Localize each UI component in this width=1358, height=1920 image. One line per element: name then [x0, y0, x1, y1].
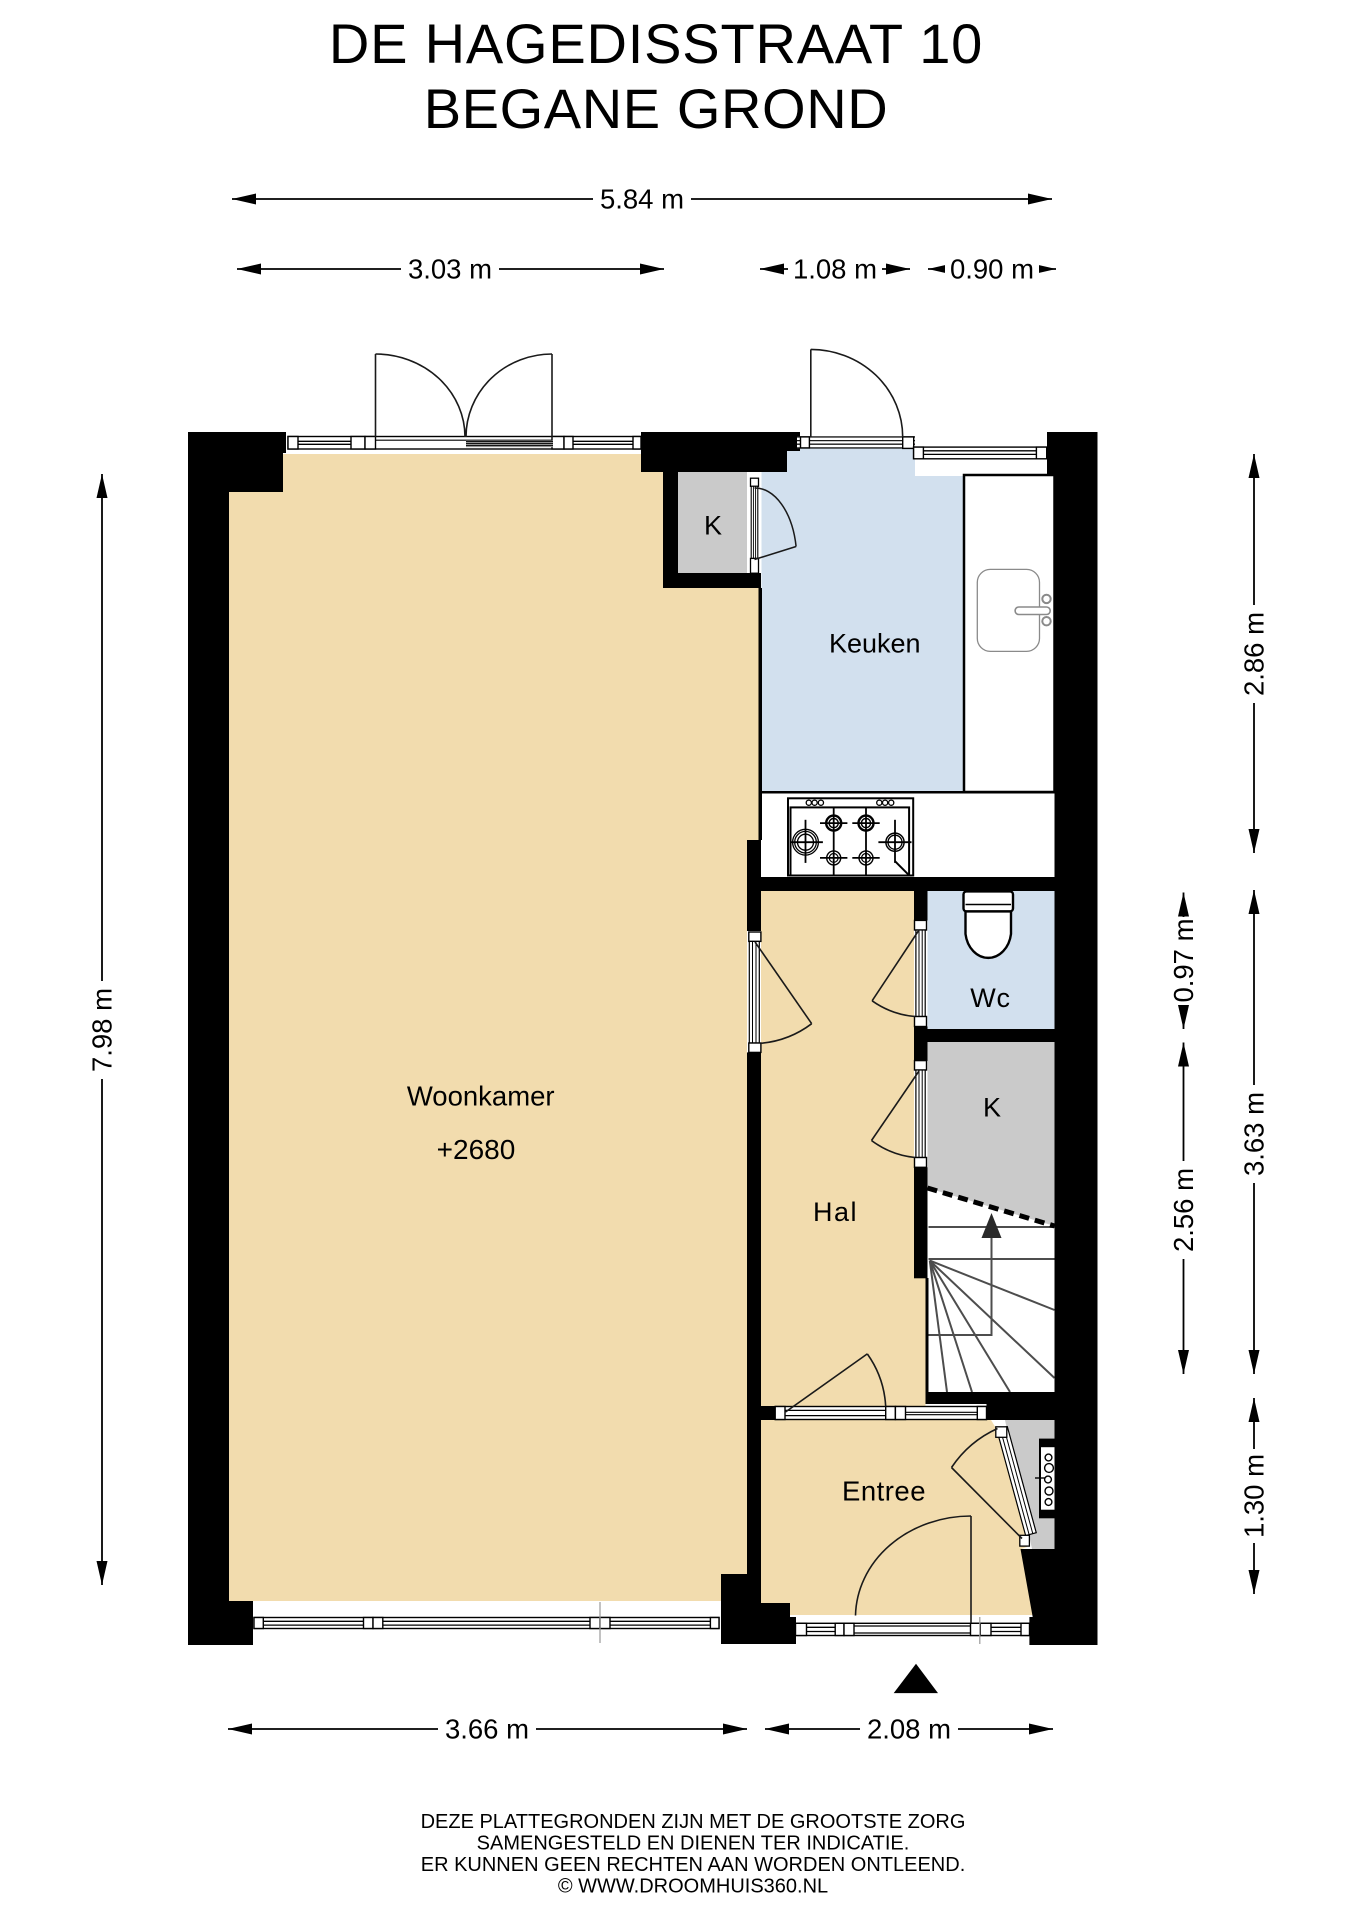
svg-text:0.97 m: 0.97 m [1168, 918, 1199, 1002]
svg-text:Hal: Hal [813, 1197, 858, 1227]
svg-text:Woonkamer: Woonkamer [407, 1081, 555, 1112]
svg-text:5.84 m: 5.84 m [600, 184, 684, 215]
svg-text:DEZE PLATTEGRONDEN ZIJN MET DE: DEZE PLATTEGRONDEN ZIJN MET DE GROOTSTE … [421, 1811, 966, 1833]
svg-text:K: K [704, 511, 722, 541]
svg-text:ER KUNNEN GEEN RECHTEN AAN WOR: ER KUNNEN GEEN RECHTEN AAN WORDEN ONTLEE… [421, 1854, 966, 1876]
svg-text:0.90 m: 0.90 m [950, 254, 1034, 285]
svg-text:1.08 m: 1.08 m [793, 254, 877, 285]
svg-text:Wc: Wc [970, 983, 1011, 1013]
svg-text:BEGANE GROND: BEGANE GROND [424, 77, 889, 140]
svg-text:Entree: Entree [842, 1476, 926, 1507]
svg-text:K: K [983, 1093, 1001, 1123]
svg-text:2.56 m: 2.56 m [1168, 1168, 1199, 1252]
svg-text:1.30 m: 1.30 m [1239, 1454, 1270, 1538]
svg-text:© WWW.DROOMHUIS360.NL: © WWW.DROOMHUIS360.NL [558, 1876, 828, 1898]
svg-text:3.03 m: 3.03 m [408, 254, 492, 285]
svg-text:DE HAGEDISSTRAAT 10: DE HAGEDISSTRAAT 10 [329, 12, 983, 75]
svg-text:2.86 m: 2.86 m [1239, 612, 1270, 696]
svg-text:Keuken: Keuken [829, 629, 921, 659]
svg-text:SAMENGESTELD EN DIENEN TER IND: SAMENGESTELD EN DIENEN TER INDICATIE. [477, 1833, 910, 1855]
svg-text:2.08 m: 2.08 m [867, 1714, 951, 1745]
svg-text:+2680: +2680 [437, 1134, 516, 1165]
svg-text:7.98 m: 7.98 m [87, 988, 118, 1072]
svg-text:3.66 m: 3.66 m [445, 1714, 529, 1745]
svg-text:3.63 m: 3.63 m [1239, 1092, 1270, 1176]
